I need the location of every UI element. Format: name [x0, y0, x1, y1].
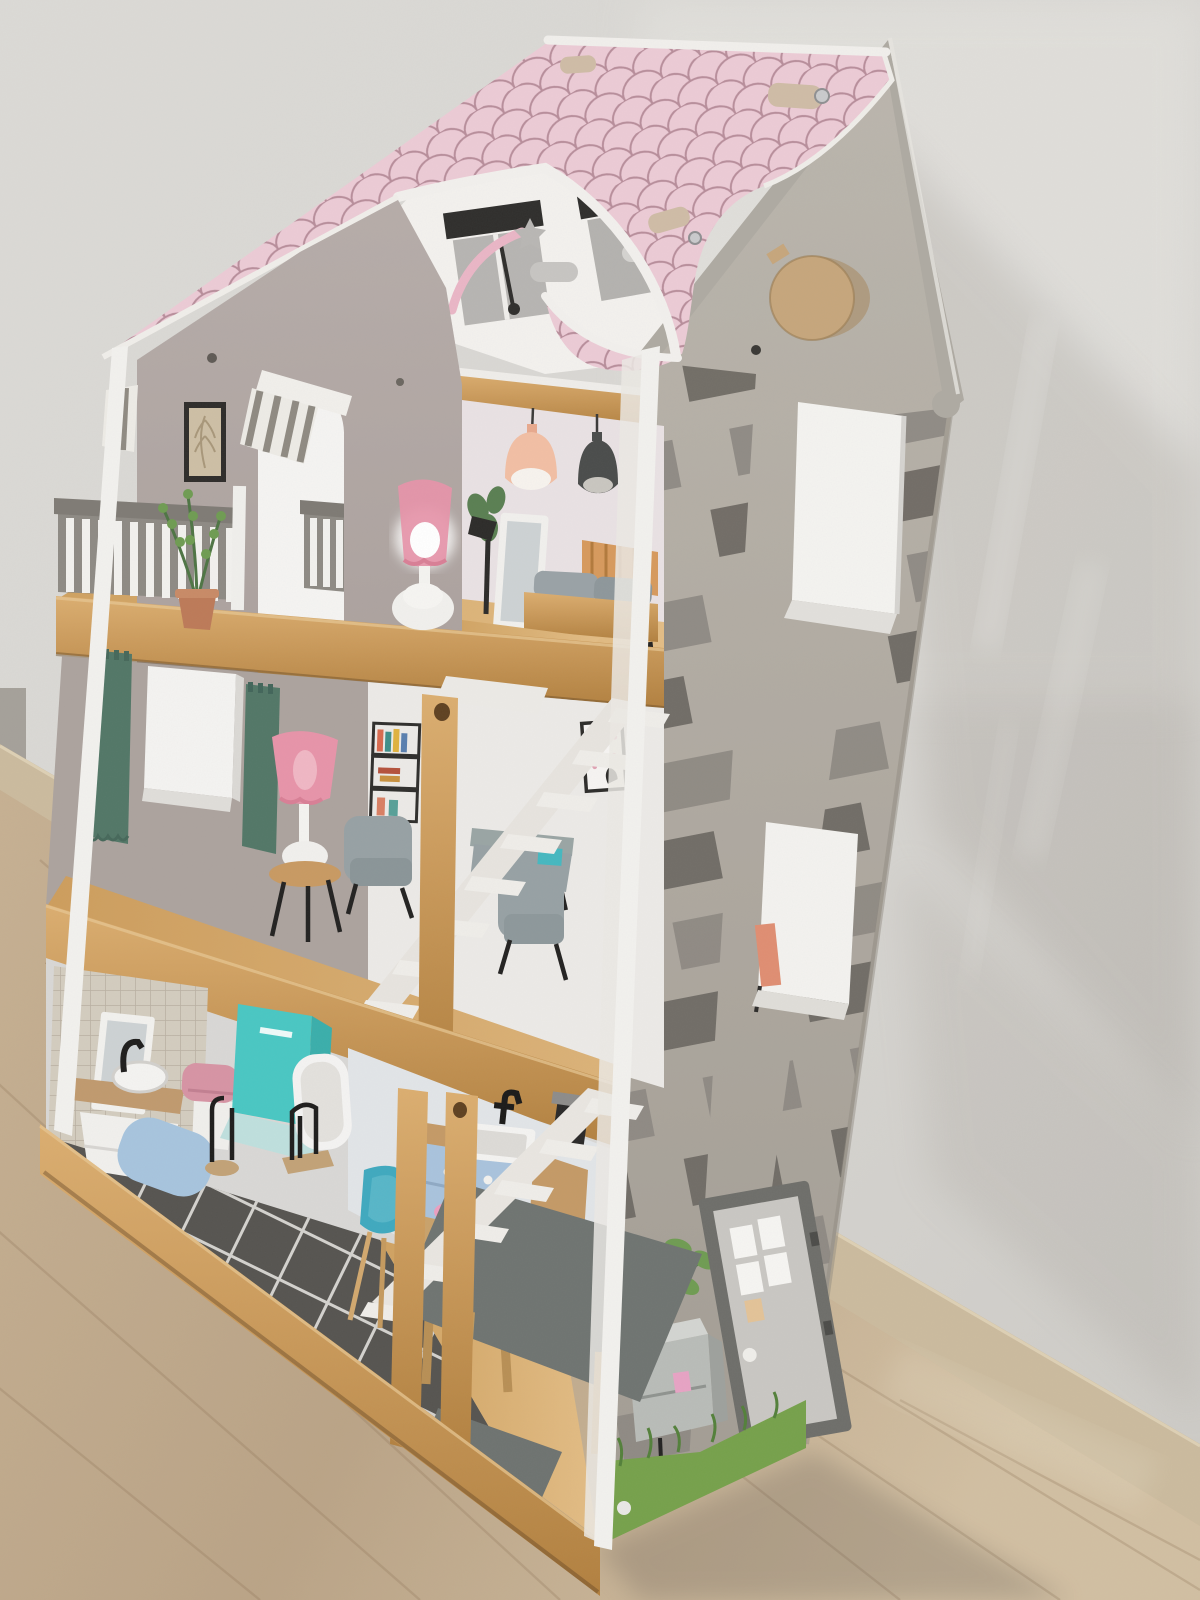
dollhouse-photo: [0, 0, 1200, 1600]
stucco-texture: [0, 0, 1200, 1600]
photo-stage: [0, 0, 1200, 1600]
